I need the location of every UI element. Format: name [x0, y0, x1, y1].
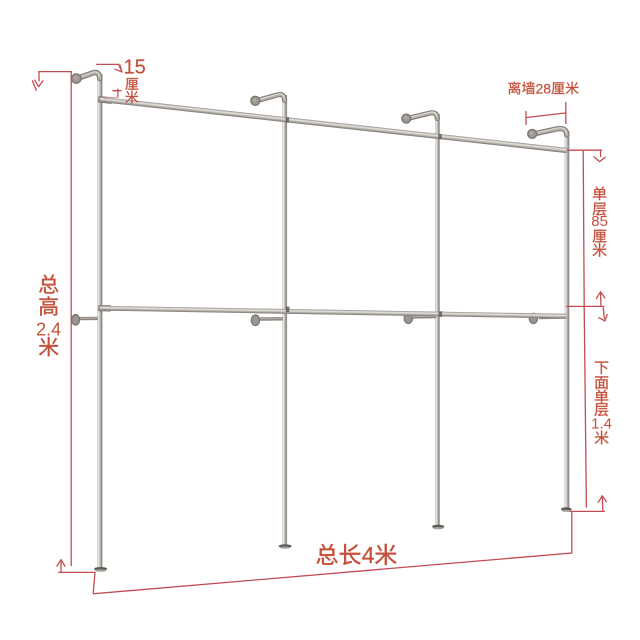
svg-text:2.4: 2.4	[36, 319, 61, 339]
svg-text:1.4: 1.4	[591, 415, 612, 432]
svg-text:28: 28	[536, 80, 552, 96]
svg-text:15: 15	[124, 57, 146, 79]
svg-text:4: 4	[362, 542, 375, 568]
svg-text:85: 85	[591, 213, 608, 230]
